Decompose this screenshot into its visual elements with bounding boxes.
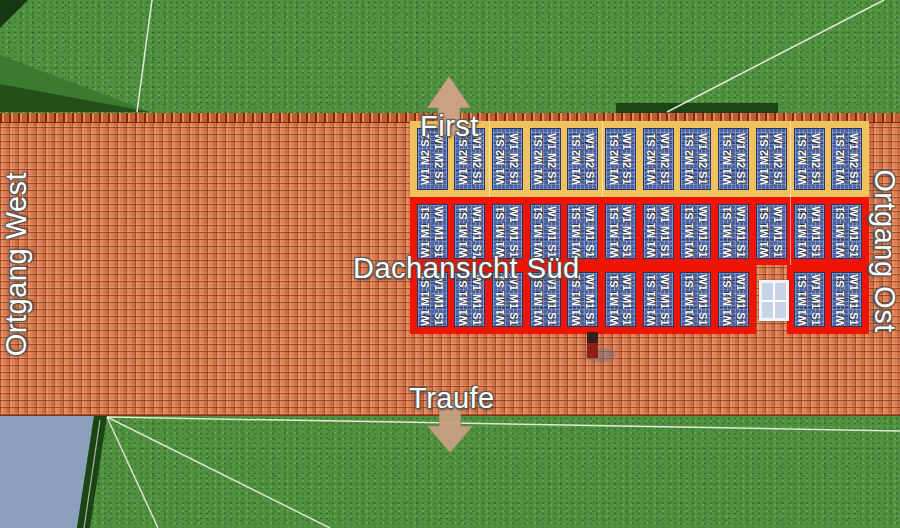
solar-panel[interactable]: W1 M1 S1W1 M1 S1 [680, 272, 711, 327]
window-pane [775, 283, 786, 300]
roof-window[interactable] [759, 280, 789, 321]
solar-panel[interactable]: W1 M1 S1W1 M1 S1 [530, 204, 561, 259]
panel-label: W1 M1 S1 [683, 274, 695, 325]
panel-label: W1 M1 S1 [659, 206, 671, 257]
panel-label: W1 M1 S1 [419, 274, 431, 325]
group-seam [489, 121, 490, 197]
panel-label: W1 M2 S1 [457, 133, 469, 184]
solar-panel[interactable]: W1 M2 S1W1 M2 S1 [794, 128, 825, 190]
solar-panel[interactable]: W1 M2 S1W1 M2 S1 [454, 128, 485, 190]
group-seam [602, 121, 603, 197]
panel-label: W1 M1 S1 [735, 274, 747, 325]
panel-label: W1 M1 S1 [721, 274, 733, 325]
panel-label: W1 M1 S1 [584, 274, 596, 325]
solar-panel[interactable]: W1 M1 S1W1 M1 S1 [794, 204, 825, 259]
panel-label: W1 M1 S1 [810, 206, 822, 257]
panel-label: W1 M1 S1 [546, 274, 558, 325]
solar-panel[interactable]: W1 M2 S1W1 M2 S1 [605, 128, 636, 190]
panel-label: W1 M2 S1 [758, 133, 770, 184]
panel-label: W1 M1 S1 [659, 274, 671, 325]
solar-panel[interactable]: W1 M1 S1W1 M1 S1 [417, 272, 448, 327]
panel-label: W1 M1 S1 [471, 206, 483, 257]
panel-label: W1 M2 S1 [584, 133, 596, 184]
window-pane [762, 283, 773, 300]
solar-panel[interactable]: W1 M1 S1W1 M1 S1 [718, 204, 749, 259]
panel-label: W1 M1 S1 [508, 274, 520, 325]
panel-label: W1 M1 S1 [796, 274, 808, 325]
panel-label: W1 M2 S1 [659, 133, 671, 184]
solar-panel[interactable]: W1 M2 S1W1 M2 S1 [492, 128, 523, 190]
roof-plan-canvas: W1 M2 S1W1 M2 S1W1 M2 S1W1 M2 S1W1 M2 S1… [0, 0, 900, 528]
panel-label: W1 M1 S1 [735, 206, 747, 257]
panel-label: W1 M1 S1 [584, 206, 596, 257]
panel-label: W1 M2 S1 [621, 133, 633, 184]
solar-panel[interactable]: W1 M1 S1W1 M1 S1 [454, 204, 485, 259]
panel-label: W1 M1 S1 [508, 206, 520, 257]
panel-label: W1 M2 S1 [494, 133, 506, 184]
panel-label: W1 M1 S1 [494, 206, 506, 257]
solar-panel[interactable]: W1 M1 S1W1 M1 S1 [454, 272, 485, 327]
solar-panel[interactable]: W1 M2 S1W1 M2 S1 [567, 128, 598, 190]
vent-pipe[interactable] [587, 332, 598, 358]
solar-panel[interactable]: W1 M1 S1W1 M1 S1 [680, 204, 711, 259]
solar-panel[interactable]: W1 M1 S1W1 M1 S1 [567, 272, 598, 327]
panel-label: W1 M1 S1 [772, 206, 784, 257]
module-group-row-eave: W1 M1 S1W1 M1 S1W1 M1 S1W1 M1 S1W1 M1 S1… [410, 265, 756, 334]
panel-label: W1 M2 S1 [532, 133, 544, 184]
solar-panel[interactable]: W1 M1 S1W1 M1 S1 [492, 272, 523, 327]
module-group-row-middle: W1 M1 S1W1 M1 S1W1 M1 S1W1 M1 S1W1 M1 S1… [410, 197, 869, 265]
panel-label: W1 M2 S1 [697, 133, 709, 184]
solar-panel[interactable]: W1 M1 S1W1 M1 S1 [567, 204, 598, 259]
panel-label: W1 M1 S1 [433, 206, 445, 257]
panel-label: W1 M1 S1 [608, 274, 620, 325]
panel-label: W1 M2 S1 [419, 133, 431, 184]
solar-panel[interactable]: W1 M1 S1W1 M1 S1 [605, 204, 636, 259]
solar-panel[interactable]: W1 M2 S1W1 M2 S1 [417, 128, 448, 190]
panel-label: W1 M1 S1 [570, 206, 582, 257]
panel-label: W1 M1 S1 [433, 274, 445, 325]
panel-label: W1 M2 S1 [721, 133, 733, 184]
window-pane [762, 302, 773, 319]
panel-label: W1 M1 S1 [721, 206, 733, 257]
panel-label: W1 M1 S1 [419, 206, 431, 257]
solar-panel[interactable]: W1 M1 S1W1 M1 S1 [756, 204, 787, 259]
panel-label: W1 M1 S1 [457, 274, 469, 325]
panel-label: W1 M1 S1 [683, 206, 695, 257]
panel-label: W1 M2 S1 [735, 133, 747, 184]
panel-label: W1 M1 S1 [848, 206, 860, 257]
panel-label: W1 M1 S1 [758, 206, 770, 257]
panel-label: W1 M2 S1 [608, 133, 620, 184]
panel-label: W1 M1 S1 [645, 274, 657, 325]
panel-label: W1 M1 S1 [494, 274, 506, 325]
solar-panel[interactable]: W1 M2 S1W1 M2 S1 [831, 128, 862, 190]
solar-panel[interactable]: W1 M1 S1W1 M1 S1 [417, 204, 448, 259]
panel-label: W1 M1 S1 [796, 206, 808, 257]
module-group-row-first: W1 M2 S1W1 M2 S1W1 M2 S1W1 M2 S1W1 M2 S1… [410, 121, 869, 197]
solar-panel[interactable]: W1 M1 S1W1 M1 S1 [831, 272, 862, 327]
panel-label: W1 M1 S1 [471, 274, 483, 325]
panel-label: W1 M1 S1 [532, 206, 544, 257]
solar-panel[interactable]: W1 M1 S1W1 M1 S1 [794, 272, 825, 327]
panel-label: W1 M1 S1 [834, 206, 846, 257]
panel-label: W1 M2 S1 [645, 133, 657, 184]
panel-label: W1 M2 S1 [471, 133, 483, 184]
panel-label: W1 M2 S1 [508, 133, 520, 184]
panel-label: W1 M2 S1 [683, 133, 695, 184]
panel-label: W1 M1 S1 [645, 206, 657, 257]
solar-panel[interactable]: W1 M2 S1W1 M2 S1 [756, 128, 787, 190]
panel-label: W1 M1 S1 [810, 274, 822, 325]
module-group-row-eave: W1 M1 S1W1 M1 S1W1 M1 S1W1 M1 S1 [787, 265, 869, 334]
panel-label: W1 M2 S1 [772, 133, 784, 184]
panel-label: W1 M1 S1 [697, 274, 709, 325]
panel-label: W1 M1 S1 [608, 206, 620, 257]
panel-label: W1 M1 S1 [848, 274, 860, 325]
solar-panel[interactable]: W1 M2 S1W1 M2 S1 [680, 128, 711, 190]
panel-label: W1 M2 S1 [433, 133, 445, 184]
solar-panel[interactable]: W1 M1 S1W1 M1 S1 [492, 204, 523, 259]
panel-label: W1 M2 S1 [834, 133, 846, 184]
solar-panel[interactable]: W1 M1 S1W1 M1 S1 [530, 272, 561, 327]
solar-panel[interactable]: W1 M1 S1W1 M1 S1 [643, 272, 674, 327]
panel-label: W1 M1 S1 [457, 206, 469, 257]
panel-label: W1 M2 S1 [546, 133, 558, 184]
window-pane [775, 302, 786, 319]
panel-label: W1 M2 S1 [848, 133, 860, 184]
panel-label: W1 M1 S1 [621, 206, 633, 257]
solar-panel[interactable]: W1 M2 S1W1 M2 S1 [643, 128, 674, 190]
solar-panel[interactable]: W1 M1 S1W1 M1 S1 [643, 204, 674, 259]
panel-label: W1 M1 S1 [532, 274, 544, 325]
solar-panel[interactable]: W1 M1 S1W1 M1 S1 [605, 272, 636, 327]
panel-label: W1 M1 S1 [546, 206, 558, 257]
solar-panel[interactable]: W1 M1 S1W1 M1 S1 [718, 272, 749, 327]
solar-panel[interactable]: W1 M2 S1W1 M2 S1 [530, 128, 561, 190]
panel-label: W1 M1 S1 [834, 274, 846, 325]
group-seam [790, 121, 791, 197]
panel-label: W1 M1 S1 [621, 274, 633, 325]
panel-label: W1 M2 S1 [570, 133, 582, 184]
panel-label: W1 M1 S1 [697, 206, 709, 257]
solar-panel[interactable]: W1 M2 S1W1 M2 S1 [718, 128, 749, 190]
panel-label: W1 M2 S1 [796, 133, 808, 184]
panel-label: W1 M2 S1 [810, 133, 822, 184]
solar-panel[interactable]: W1 M1 S1W1 M1 S1 [831, 204, 862, 259]
panel-label: W1 M1 S1 [570, 274, 582, 325]
group-seam [790, 197, 791, 265]
